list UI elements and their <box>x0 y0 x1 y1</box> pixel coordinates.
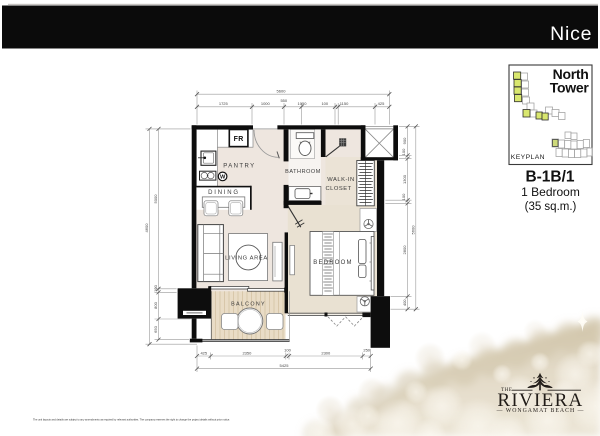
svg-text:Nice: Nice <box>550 23 592 45</box>
svg-text:800: 800 <box>153 301 158 308</box>
svg-text:— WONGAMAT BEACH —: — WONGAMAT BEACH — <box>496 408 585 414</box>
svg-text:Tower: Tower <box>550 79 590 95</box>
svg-text:5600: 5600 <box>410 225 415 235</box>
svg-text:650: 650 <box>153 325 158 332</box>
svg-text:425: 425 <box>200 350 207 355</box>
svg-text:100: 100 <box>153 284 158 291</box>
svg-text:2350: 2350 <box>242 350 252 355</box>
svg-text:DINING: DINING <box>208 190 240 196</box>
svg-text:LIVING AREA: LIVING AREA <box>225 255 268 261</box>
svg-text:The unit layouts and details a: The unit layouts and details are subject… <box>33 418 230 422</box>
svg-text:FR: FR <box>234 136 244 143</box>
svg-text:KEYPLAN: KEYPLAN <box>511 154 545 161</box>
svg-text:WALK-IN: WALK-IN <box>327 177 354 183</box>
svg-text:B-1B/1: B-1B/1 <box>525 169 574 186</box>
svg-text:5600: 5600 <box>277 89 287 94</box>
svg-text:1 Bedroom: 1 Bedroom <box>521 185 580 199</box>
svg-text:1725: 1725 <box>219 101 229 106</box>
svg-text:W: W <box>220 175 226 181</box>
svg-text:5425: 5425 <box>280 363 290 368</box>
svg-text:BALCONY: BALCONY <box>231 302 266 308</box>
svg-text:CLOSET: CLOSET <box>325 186 351 192</box>
svg-text:425: 425 <box>378 101 385 106</box>
svg-text:100: 100 <box>401 193 406 200</box>
svg-text:PANTRY: PANTRY <box>223 164 255 170</box>
svg-text:100: 100 <box>284 347 291 352</box>
svg-text:400: 400 <box>402 299 407 306</box>
svg-text:(35 sq.m.): (35 sq.m.) <box>525 201 577 213</box>
svg-text:1300: 1300 <box>402 174 407 184</box>
svg-text:1050: 1050 <box>298 101 308 106</box>
svg-text:4600: 4600 <box>144 223 149 233</box>
svg-text:5000: 5000 <box>153 194 158 204</box>
svg-text:900: 900 <box>402 137 407 144</box>
svg-text:100: 100 <box>321 101 328 106</box>
svg-text:1150: 1150 <box>340 101 349 106</box>
svg-text:100: 100 <box>401 148 406 155</box>
svg-text:2800: 2800 <box>402 245 407 255</box>
svg-text:1000: 1000 <box>261 101 271 106</box>
svg-text:250: 250 <box>363 347 370 352</box>
svg-text:BATHROOM: BATHROOM <box>285 169 321 175</box>
svg-text:BEDROOM: BEDROOM <box>313 260 352 266</box>
svg-text:2300: 2300 <box>321 350 331 355</box>
svg-text:550: 550 <box>280 98 287 103</box>
